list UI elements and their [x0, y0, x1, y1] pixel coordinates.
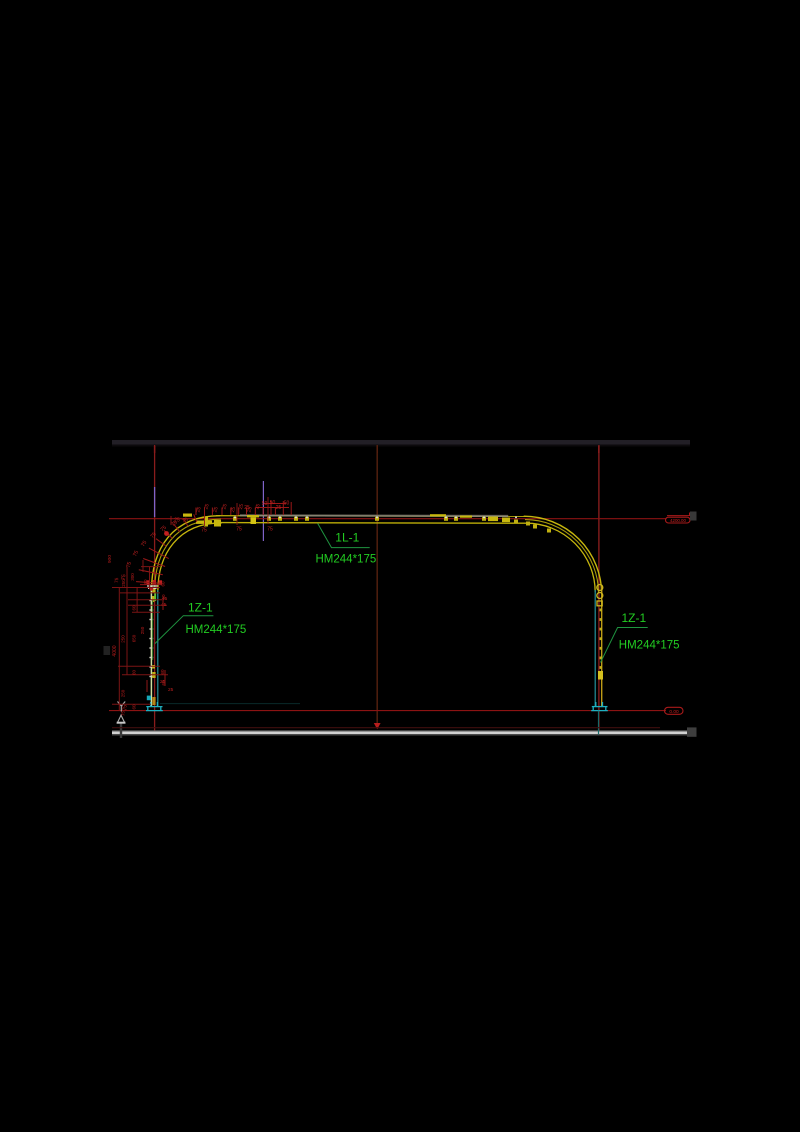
svg-text:1Z-1: 1Z-1	[622, 611, 647, 625]
svg-text:75: 75	[121, 711, 126, 717]
svg-text:HM244*175: HM244*175	[316, 553, 377, 565]
svg-text:60: 60	[132, 670, 137, 676]
svg-text:250: 250	[121, 689, 126, 697]
svg-text:25: 25	[244, 505, 250, 511]
svg-text:60: 60	[132, 704, 137, 710]
svg-text:45: 45	[161, 602, 167, 608]
svg-text:25: 25	[276, 505, 282, 511]
svg-text:300: 300	[130, 573, 135, 581]
svg-text:25: 25	[168, 687, 174, 693]
svg-text:50: 50	[270, 500, 276, 506]
svg-text:60: 60	[161, 581, 166, 587]
svg-text:75: 75	[201, 528, 207, 534]
svg-text:75: 75	[123, 705, 129, 711]
svg-text:650: 650	[132, 634, 137, 642]
svg-text:75: 75	[267, 527, 273, 533]
svg-text:50: 50	[262, 501, 268, 507]
svg-text:HM244*175: HM244*175	[619, 640, 680, 652]
svg-text:4000: 4000	[112, 645, 118, 656]
svg-text:0.00: 0.00	[669, 709, 679, 715]
svg-text:60: 60	[160, 669, 165, 675]
svg-text:60: 60	[132, 605, 137, 611]
svg-text:HM244*175: HM244*175	[186, 624, 247, 636]
svg-text:1Z-1: 1Z-1	[188, 600, 213, 614]
svg-text:60: 60	[143, 579, 148, 585]
svg-text:75: 75	[236, 527, 242, 533]
svg-text:900: 900	[107, 555, 113, 563]
svg-text:1L-1: 1L-1	[335, 531, 359, 545]
svg-text:250: 250	[121, 635, 126, 643]
svg-text:250: 250	[121, 579, 126, 587]
svg-text:50: 50	[284, 501, 290, 507]
svg-text:250: 250	[140, 626, 145, 634]
svg-text:25: 25	[174, 518, 180, 524]
svg-text:4200.00: 4200.00	[670, 518, 686, 523]
svg-text:75: 75	[114, 577, 120, 583]
